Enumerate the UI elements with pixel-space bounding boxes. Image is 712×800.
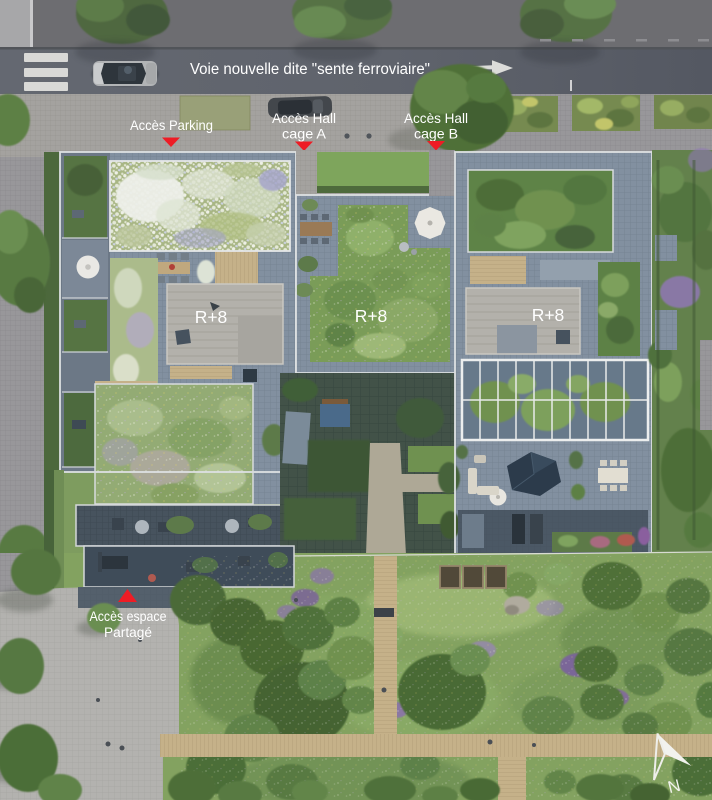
svg-text:Voie nouvelle dite "sente ferr: Voie nouvelle dite "sente ferroviaire" [190,61,430,78]
svg-text:Accès Hall: Accès Hall [404,110,468,126]
svg-text:Partagé: Partagé [104,624,152,640]
svg-text:R+8: R+8 [355,306,388,326]
svg-text:cage B: cage B [414,126,458,142]
svg-text:cage A: cage A [282,126,327,142]
svg-text:Accès espace: Accès espace [90,608,167,624]
svg-text:R+8: R+8 [532,305,565,325]
svg-text:Accès Hall: Accès Hall [272,110,336,126]
svg-text:Accès Parking: Accès Parking [130,117,213,133]
svg-text:R+8: R+8 [195,307,228,327]
